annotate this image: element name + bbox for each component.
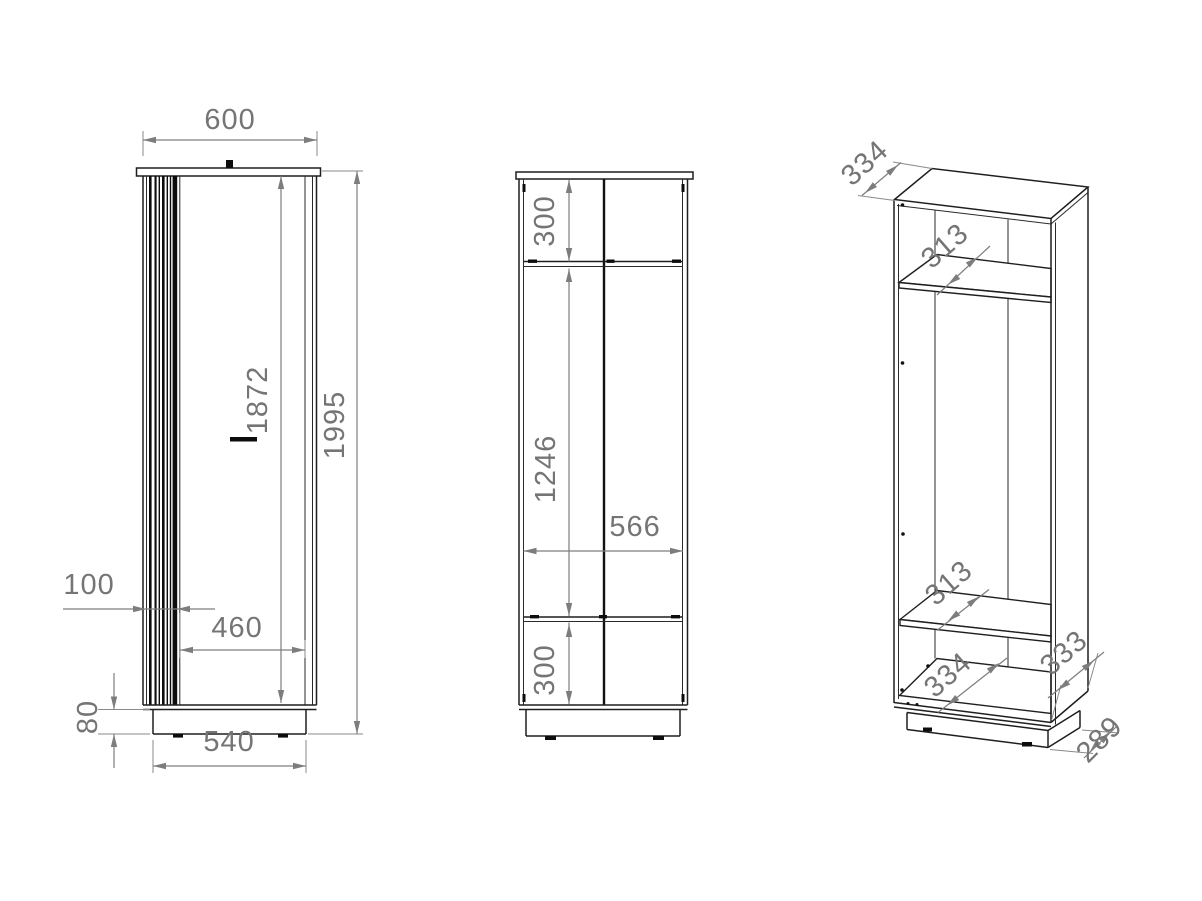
dim-label-566: 566 bbox=[609, 511, 660, 543]
dim-label-1872: 1872 bbox=[242, 366, 274, 435]
dim-label-600: 600 bbox=[204, 104, 255, 136]
dim-top-depth-334: 334 bbox=[835, 134, 932, 200]
internal-plinth bbox=[526, 710, 680, 741]
front-top-panel bbox=[137, 168, 321, 176]
perspective-foot-right bbox=[1022, 742, 1032, 747]
dim-label-334-top: 334 bbox=[835, 134, 895, 192]
perspective-plinth bbox=[907, 711, 1080, 748]
dim-label-289: 289 bbox=[1070, 710, 1129, 769]
dim-label-100: 100 bbox=[63, 569, 114, 601]
dim-label-1995: 1995 bbox=[319, 391, 351, 460]
dim-bottom-compartment-300: 300 bbox=[529, 623, 572, 705]
dim-width-600: 600 bbox=[143, 104, 317, 156]
dim-label-460: 460 bbox=[211, 612, 262, 644]
front-top-knob bbox=[226, 160, 233, 168]
front-door-handle bbox=[230, 437, 257, 442]
technical-drawing-page: 600 1872 1995 100 bbox=[0, 0, 1202, 901]
dim-label-80: 80 bbox=[72, 700, 104, 734]
dim-middle-compartment-1246: 1246 bbox=[530, 269, 572, 617]
dim-door-width-460: 460 bbox=[180, 612, 305, 658]
front-foot-right bbox=[278, 734, 288, 738]
front-slat-panel bbox=[149, 176, 177, 705]
dim-label-300-top: 300 bbox=[529, 195, 561, 246]
dim-top-compartment-300: 300 bbox=[529, 180, 572, 262]
perspective-upper-shelf bbox=[899, 255, 1051, 303]
dim-label-540: 540 bbox=[203, 726, 254, 758]
dim-label-300-bottom: 300 bbox=[529, 644, 561, 695]
perspective-foot-left bbox=[923, 728, 932, 732]
dim-slat-width-100: 100 bbox=[63, 569, 215, 612]
internal-top-panel bbox=[516, 172, 693, 179]
perspective-view: 334 313 313 334 33 bbox=[835, 134, 1129, 769]
dim-label-1246: 1246 bbox=[530, 435, 562, 504]
dim-plinth-height-80: 80 bbox=[72, 673, 150, 768]
wardrobe-dimension-diagram: 600 1872 1995 100 bbox=[0, 0, 1202, 901]
dim-plinth-width-540: 540 bbox=[153, 726, 306, 773]
front-view: 600 1872 1995 100 bbox=[63, 104, 363, 773]
front-foot-left bbox=[173, 734, 183, 738]
internal-view: 300 1246 566 300 bbox=[516, 172, 693, 740]
